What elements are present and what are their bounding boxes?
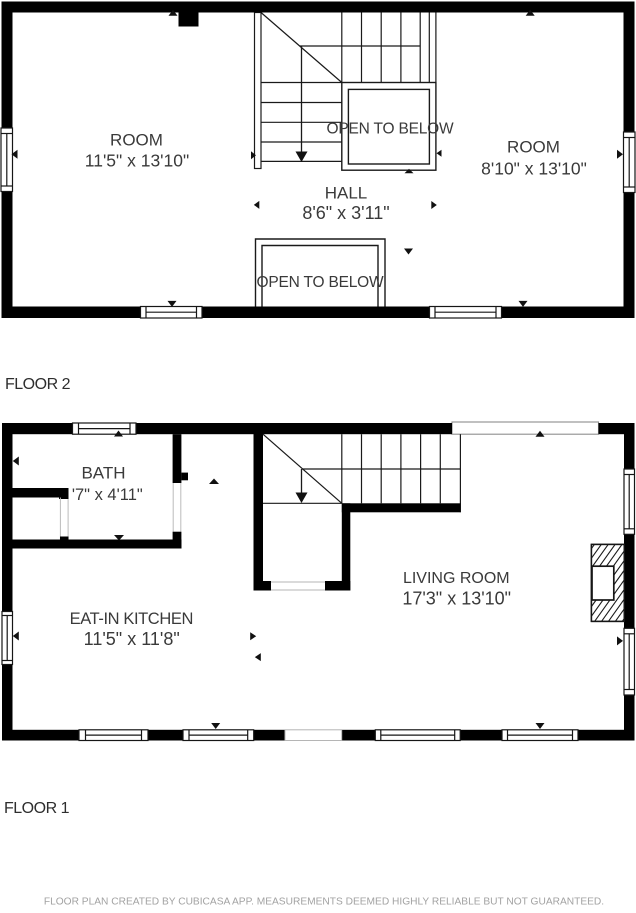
svg-text:ROOM: ROOM: [110, 131, 163, 150]
svg-text:11'5" x 13'10": 11'5" x 13'10": [85, 151, 189, 171]
svg-text:17'3" x 13'10": 17'3" x 13'10": [402, 589, 511, 609]
svg-text:FLOOR 2: FLOOR 2: [5, 376, 71, 393]
svg-text:11'5" x 11'8": 11'5" x 11'8": [84, 629, 180, 649]
svg-text:8'6" x 3'11": 8'6" x 3'11": [302, 203, 389, 223]
svg-text:EAT-IN KITCHEN: EAT-IN KITCHEN: [70, 610, 193, 628]
svg-text:FLOOR PLAN CREATED BY CUBICASA: FLOOR PLAN CREATED BY CUBICASA APP. MEAS…: [44, 897, 604, 908]
svg-text:'7" x 4'11": '7" x 4'11": [72, 486, 143, 504]
svg-text:BATH: BATH: [81, 464, 125, 483]
svg-text:LIVING ROOM: LIVING ROOM: [403, 570, 510, 587]
svg-text:OPEN TO BELOW: OPEN TO BELOW: [327, 121, 454, 138]
svg-text:8'10" x 13'10": 8'10" x 13'10": [481, 159, 587, 179]
svg-text:HALL: HALL: [325, 184, 368, 203]
svg-text:ROOM: ROOM: [507, 138, 560, 157]
svg-text:OPEN TO BELOW: OPEN TO BELOW: [257, 274, 384, 291]
svg-text:FLOOR 1: FLOOR 1: [4, 800, 70, 817]
